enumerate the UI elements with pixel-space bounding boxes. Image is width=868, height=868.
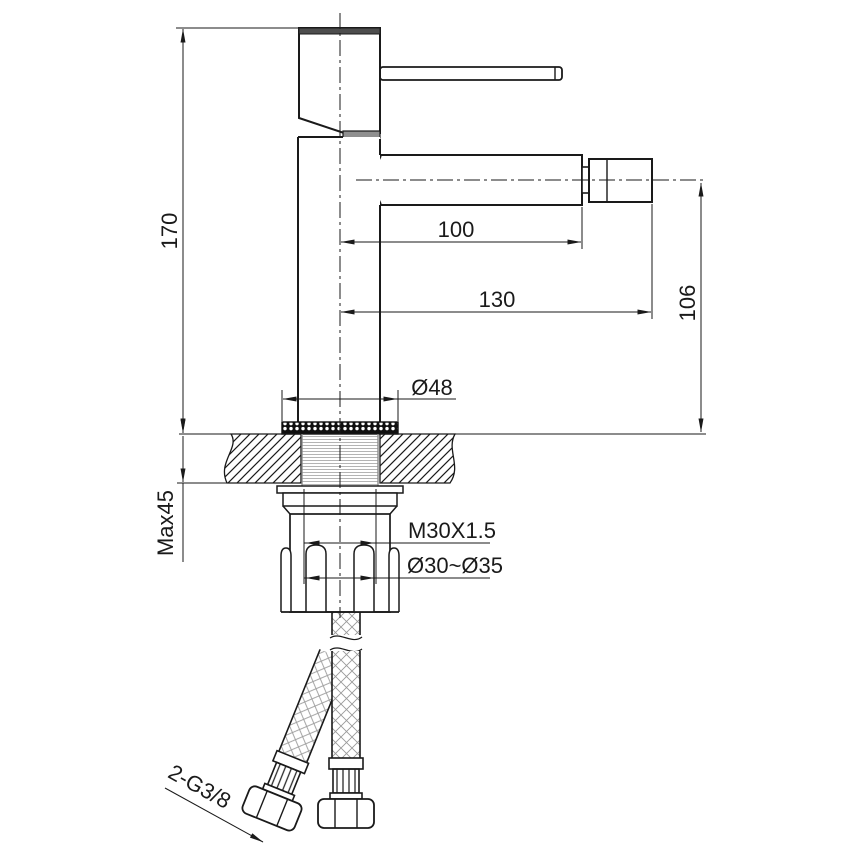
extension-lines [176,28,652,584]
dim-spout-height: 106 [675,183,701,432]
dim-overall-height: 170 [157,29,183,433]
dim-overall-reach: 130 [341,287,651,312]
dim-spout-height-label: 106 [675,285,700,322]
dim-hole-diameter-label: Ø30~Ø35 [407,553,503,578]
dim-base-diameter-label: Ø48 [411,375,453,400]
supply-hose-vertical [318,612,374,828]
dim-max-thickness: Max45 [153,420,183,562]
dim-overall-reach-label: 130 [479,287,516,312]
counter-slab-right [380,434,455,483]
handle-lever [380,67,562,80]
centerlines [340,13,706,618]
dim-overall-height-label: 170 [157,213,182,250]
counter-section [179,434,706,487]
hose-break-line [330,636,362,640]
dim-spout-reach-label: 100 [438,217,475,242]
cartridge-ring [343,131,380,138]
technical-drawing-page: 170 100 130 106 Ø48 Max45 M30X1.5 [0,0,868,868]
dim-mounting-thread-label: M30X1.5 [408,518,496,543]
bidet-mixer-installation-drawing: 170 100 130 106 Ø48 Max45 M30X1.5 [0,0,868,868]
dim-max-thickness-label: Max45 [153,490,178,556]
callout-hose-connection-label: 2-G3/8 [164,759,235,813]
counter-slab-left [224,434,301,483]
